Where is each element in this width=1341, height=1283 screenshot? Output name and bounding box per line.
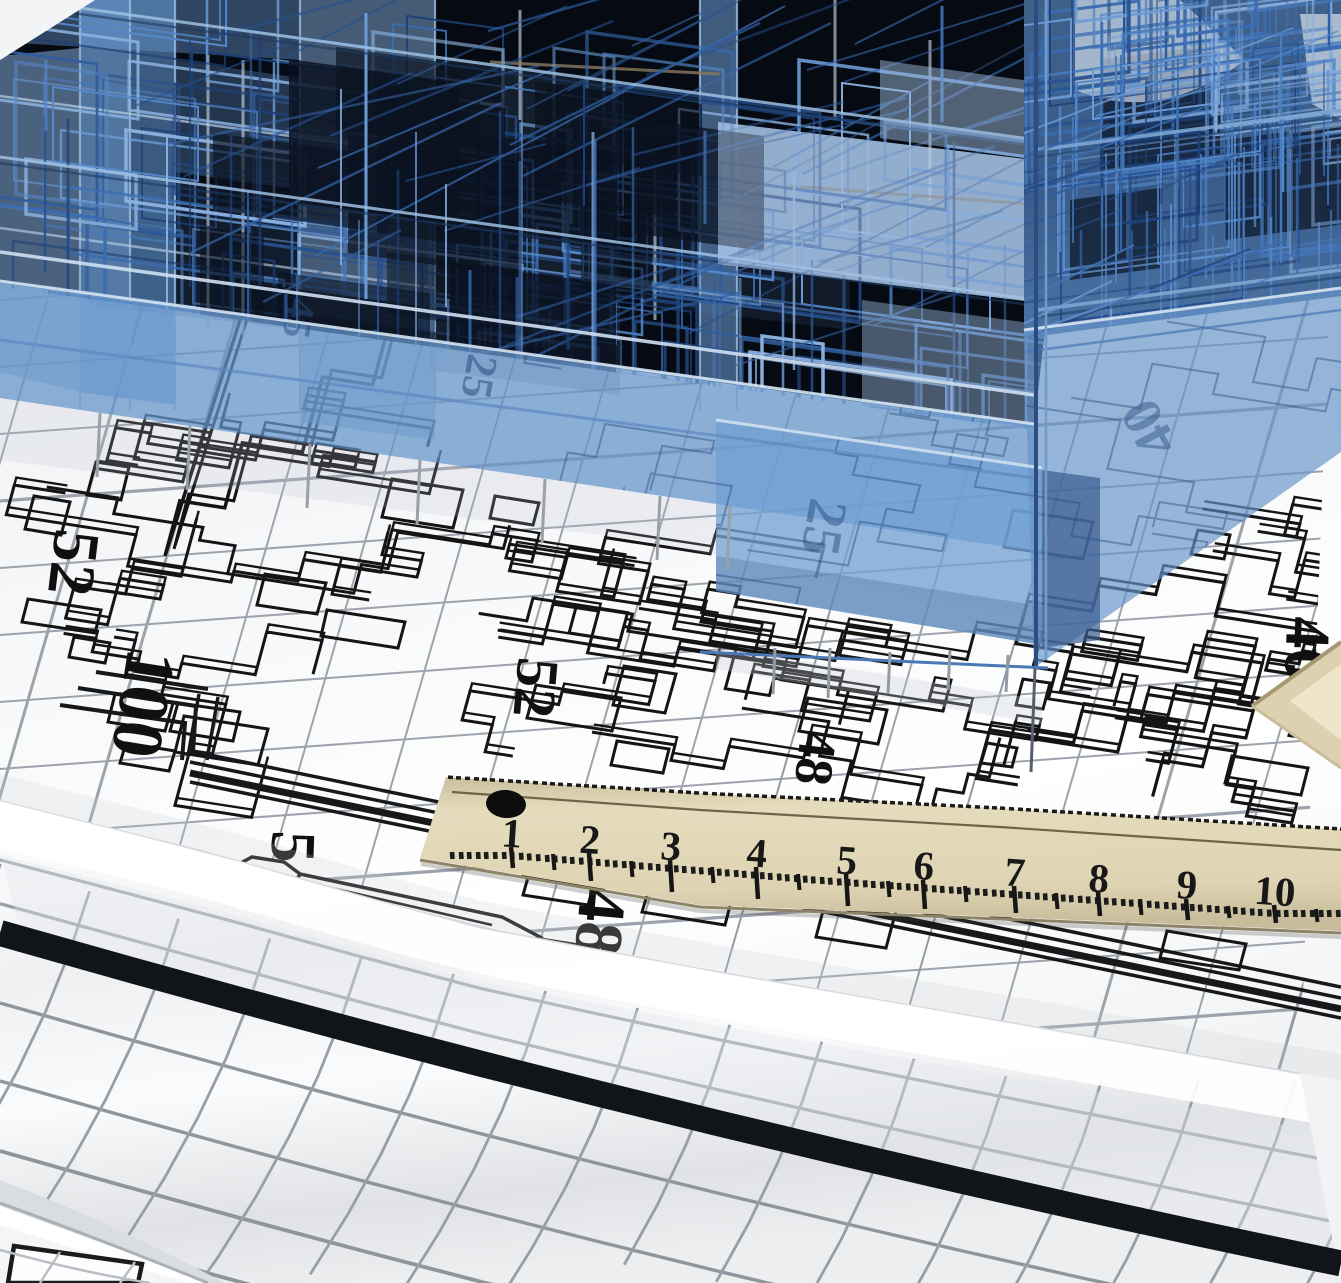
svg-text:25: 25: [788, 494, 859, 560]
svg-text:10: 10: [1253, 867, 1297, 916]
svg-text:100: 100: [96, 644, 192, 763]
svg-text:45: 45: [274, 295, 325, 342]
svg-text:6: 6: [912, 842, 936, 889]
svg-text:52: 52: [500, 655, 571, 721]
svg-text:48: 48: [783, 728, 849, 789]
svg-text:9: 9: [1175, 861, 1199, 908]
svg-text:2: 2: [578, 816, 602, 863]
svg-text:5: 5: [835, 836, 859, 883]
svg-text:52: 52: [33, 525, 113, 599]
svg-text:3: 3: [659, 822, 683, 869]
svg-text:7: 7: [1003, 848, 1027, 895]
svg-text:25: 25: [451, 351, 507, 403]
svg-text:4: 4: [745, 829, 769, 876]
svg-text:8: 8: [1087, 855, 1111, 902]
svg-text:1: 1: [500, 809, 524, 856]
